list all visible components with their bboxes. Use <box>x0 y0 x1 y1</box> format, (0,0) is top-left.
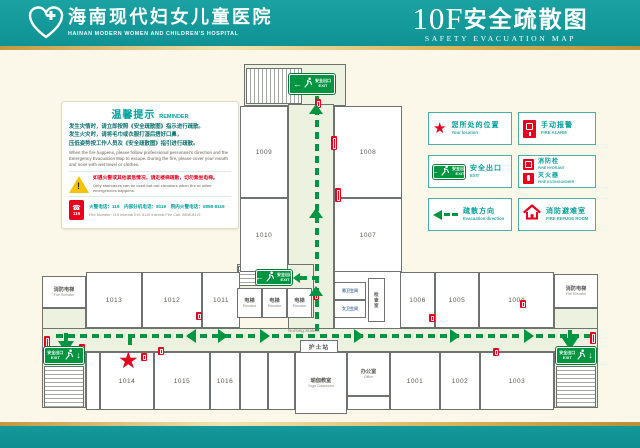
fire-refuge-house-icon <box>523 204 541 225</box>
fire-hydrant-icon <box>158 347 164 355</box>
reminder-title-en: REMINDER <box>159 114 188 120</box>
legend-label-en: Your location <box>451 130 499 135</box>
reminder-text-en: When the fire happens, please follow pro… <box>69 150 231 168</box>
legend-label-en: FIRE REFUGE ROOM <box>546 216 588 221</box>
room-number: 1013 <box>106 297 122 304</box>
arrow-left-icon: ← <box>255 273 264 282</box>
reminder-line-2: 发生火灾时，请将毛巾或衣服打湿后捂好口鼻， <box>69 131 231 139</box>
phone-text-en: Fire Number: 119 Internal Ext: 8119 Inte… <box>89 212 225 217</box>
room-1013: 1013 <box>86 272 142 328</box>
legend-label-en: FIRE ALARM <box>541 130 573 135</box>
room-label-en: Fire Elevator <box>566 292 586 296</box>
phone-badge-number: 119 <box>73 212 80 217</box>
room-label-en: Elevator <box>293 304 306 308</box>
room-number: 1009 <box>256 149 272 156</box>
room-number: 1014 <box>119 378 135 385</box>
fire-hydrant-icon <box>429 314 435 322</box>
room-1008: 1008 <box>334 106 402 198</box>
evacuation-arrow-right <box>524 329 534 343</box>
fire-hydrant-icon <box>520 300 526 308</box>
evacuation-arrow-left <box>186 329 196 343</box>
exit-sign-text: 安全出口EXIT <box>315 79 331 88</box>
fire-phone-119-icon: ☎119 <box>69 200 84 220</box>
room-label-en: Yoga Classroom <box>308 384 334 388</box>
room-fire-elevator-left: 消防电梯Fire Elevator <box>42 276 86 308</box>
exit-sign-left: 安全出口EXIT↓ <box>44 347 84 364</box>
legend-label-zh: 消防栓 <box>538 159 565 166</box>
room-number: 1010 <box>256 232 272 239</box>
evacuation-direction-icon <box>433 210 458 220</box>
exit-sign-right: 安全出口EXIT↓ <box>556 347 596 364</box>
room-1002: 1002 <box>440 352 480 410</box>
evacuation-arrow-right <box>218 329 228 343</box>
room-number: 1002 <box>452 378 468 385</box>
room-unlabeled <box>347 396 390 410</box>
room-1012: 1012 <box>142 272 202 328</box>
exit-sign-central: ←安全出口EXIT <box>256 270 292 285</box>
reminder-line-1: 发生灾情时，请立即按照《安全疏散图》指示进行疏散。 <box>69 123 231 131</box>
room-label-zh: 检查室 <box>374 292 380 309</box>
exit-sign-top: ←安全出口EXIT <box>289 74 335 94</box>
legend-item-fire-alarm: 手动报警FIRE ALARM <box>518 112 596 145</box>
room-office: 办公室Office <box>347 352 390 396</box>
room-number: 1005 <box>449 297 465 304</box>
legend-label-en: EXIT <box>470 173 502 178</box>
room-1011: 1011 <box>202 272 240 328</box>
running-man-icon <box>441 163 450 181</box>
room-unlabeled <box>240 352 268 410</box>
legend-subitem: 消防栓FIRE HYDRANT <box>523 159 574 171</box>
reminder-panel: 温馨提示 REMINDER 发生灾情时，请立即按照《安全疏散图》指示进行疏散。 … <box>61 101 239 229</box>
staircase-right <box>556 366 596 408</box>
arrow-left-icon: ← <box>293 80 302 89</box>
evacuation-arrow-up <box>309 286 323 296</box>
legend-item-safety-exit: ←安全出口EXIT安全出口EXIT <box>428 155 512 188</box>
legend-item-your-location: ★您所处的位置Your location <box>428 112 512 145</box>
room-elevator-2: 电梯Elevator <box>262 288 287 318</box>
room-number: 1011 <box>213 297 229 304</box>
room-1003: 1003 <box>480 352 554 410</box>
room-1001: 1001 <box>390 352 440 410</box>
nursing-station-label-en: Nursing Station <box>288 328 319 333</box>
room-yoga-classroom: 瑜伽教室Yoga Classroom <box>295 352 347 414</box>
legend-label-zh: 您所处的位置 <box>451 122 499 130</box>
room-number: 1003 <box>509 378 525 385</box>
running-man-icon <box>304 75 313 93</box>
room-1007: 1007 <box>334 198 402 272</box>
running-man-icon <box>65 347 74 365</box>
warning-triangle-icon: ! <box>69 176 89 193</box>
reminder-phone: ☎119 火警电话：119 内部分机电话：8119 院内火警电话：0898-81… <box>69 196 231 220</box>
legend-label-en: FIRE EXTINGUISHER <box>538 180 574 184</box>
warning-text-zh: 如遇火警或其他紧急情况，请走楼梯疏散，切勿乘坐电梯。 <box>93 175 231 182</box>
fire-hydrant-icon <box>196 312 202 320</box>
reminder-title-zh: 温馨提示 <box>111 110 155 121</box>
room-number: 1007 <box>360 232 376 239</box>
arrow-down-icon: ↓ <box>76 351 81 360</box>
arrow-down-icon: ↓ <box>588 351 593 360</box>
room-1015: 1015 <box>154 352 210 410</box>
fire-hydrant-icon <box>590 332 596 344</box>
arrow-left-icon: ← <box>430 167 439 176</box>
legend-subitem: 灭火器FIRE EXTINGUISHER <box>523 173 574 185</box>
fire-hydrant-icon <box>493 348 499 356</box>
legend-label-zh: 灭火器 <box>538 173 574 180</box>
legend-label-zh: 疏散方向 <box>463 208 504 216</box>
staircase-left <box>44 366 84 408</box>
location-star-icon: ★ <box>433 121 446 136</box>
room-number: 1015 <box>174 378 190 385</box>
room-label-en: Office <box>364 375 373 379</box>
evacuation-path <box>56 334 590 338</box>
footer-bar <box>0 426 640 448</box>
nursing-station-label-zh: 护士站 <box>309 342 329 351</box>
legend-item-fire-refuge-room: 消防避难室FIRE REFUGE ROOM <box>518 198 596 231</box>
exit-sign-icon: ←安全出口EXIT <box>433 165 465 179</box>
phone-text-zh: 火警电话：119 内部分机电话：8119 院内火警电话：0898-8119 <box>89 204 225 210</box>
room-exam-room: 检查室 <box>368 278 385 322</box>
room-label-zh: 男卫生间 <box>342 289 358 293</box>
reminder-title: 温馨提示 REMINDER <box>69 106 231 121</box>
reminder-warning: ! 如遇火警或其他紧急情况，请走楼梯疏散，切勿乘坐电梯。 Only stairc… <box>69 171 231 194</box>
evacuation-arrow-right <box>260 329 270 343</box>
reminder-line-3: 压低姿势按工作人员及《安全疏散图》指引进行疏散。 <box>69 140 231 148</box>
room-unlabeled <box>268 352 295 410</box>
legend-label-zh: 安全出口 <box>470 165 502 173</box>
legend-item-evacuation-direction: 疏散方向Evacuation direction <box>428 198 512 231</box>
reminder-text-zh: 发生灾情时，请立即按照《安全疏散图》指示进行疏散。 发生火灾时，请将毛巾或衣服打… <box>69 123 231 148</box>
room-unlabeled <box>86 352 100 410</box>
evacuation-arrow-right <box>354 329 364 343</box>
room-washroom-men: 男卫生间 <box>334 282 366 300</box>
room-label-en: Elevator <box>268 304 281 308</box>
fire-hydrant-icon <box>523 159 534 170</box>
legend-label-zh: 消防避难室 <box>546 208 588 216</box>
warning-text-en: Only staircases can be used but not elev… <box>93 183 231 194</box>
exit-sign-text: 安全出口EXIT <box>277 273 293 282</box>
room-1010: 1010 <box>240 198 288 272</box>
evacuation-arrow-up <box>309 208 323 218</box>
room-1016: 1016 <box>210 352 240 410</box>
room-number: 1008 <box>360 149 376 156</box>
room-1009: 1009 <box>240 106 288 198</box>
evacuation-arrow-shaft <box>64 333 68 342</box>
fire-alarm-icon <box>523 120 536 138</box>
room-label-en: Fire Elevator <box>54 293 74 297</box>
fire-hydrant-icon <box>331 136 337 150</box>
running-man-icon <box>577 347 586 365</box>
evacuation-arrow-shaft <box>568 330 572 339</box>
room-label-en: Elevator <box>243 304 256 308</box>
room-washroom-women: 女卫生间 <box>334 300 366 318</box>
room-number: 1012 <box>164 297 180 304</box>
your-location-star: ★ <box>118 349 142 373</box>
room-fire-elevator-right: 消防电梯Fire Elevator <box>554 274 598 308</box>
legend-item-hydrant-extinguisher: 消防栓FIRE HYDRANT灭火器FIRE EXTINGUISHER <box>518 155 596 188</box>
exit-sign-text: 安全出口EXIT <box>47 351 63 360</box>
room-number: 1016 <box>217 378 233 385</box>
evacuation-arrow-right <box>450 329 460 343</box>
evacuation-arrow-left <box>293 273 300 283</box>
exit-sign-text: 安全出口EXIT <box>452 167 468 176</box>
exit-sign-text: 安全出口EXIT <box>559 351 575 360</box>
legend-label-en: Evacuation direction <box>463 216 504 221</box>
room-1005: 1005 <box>435 272 479 328</box>
room-number: 1001 <box>407 378 423 385</box>
room-label-zh: 女卫生间 <box>342 307 358 311</box>
room-elevator-1: 电梯Elevator <box>237 288 262 318</box>
legend-label-zh: 手动报警 <box>541 122 573 130</box>
evacuation-arrow-up <box>309 104 323 114</box>
fire-extinguisher-icon <box>523 173 534 184</box>
evacuation-path <box>300 276 316 280</box>
room-number: 1006 <box>409 297 425 304</box>
fire-hydrant-icon <box>335 188 341 202</box>
legend-label-en: FIRE HYDRANT <box>538 166 565 170</box>
evacuation-map-poster: 海南现代妇女儿童医院 HAINAN MODERN WOMEN AND CHILD… <box>0 0 640 448</box>
room-1004: 1004 <box>479 272 554 328</box>
running-man-icon <box>266 269 275 287</box>
nursing-station: 护士站 <box>300 340 338 353</box>
